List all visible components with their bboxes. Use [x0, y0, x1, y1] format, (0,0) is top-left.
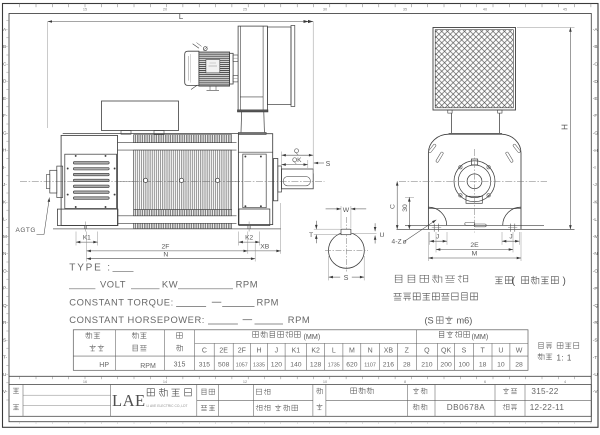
- svg-text:QK: QK: [292, 157, 302, 164]
- svg-text:15: 15: [83, 8, 87, 12]
- svg-text:K1: K1: [292, 347, 301, 354]
- svg-text:CONSTANT TORQUE:: CONSTANT TORQUE:: [69, 296, 173, 307]
- svg-text:-T: -T: [593, 355, 598, 360]
- svg-text:45: 45: [563, 8, 567, 12]
- svg-text:6: 6: [484, 380, 486, 384]
- svg-text:-I: -I: [593, 165, 596, 170]
- svg-text:1107: 1107: [364, 362, 376, 368]
- svg-text:-O: -O: [593, 269, 599, 274]
- svg-text:T: T: [309, 232, 313, 239]
- svg-text:LAE: LAE: [112, 391, 146, 410]
- svg-text:Q: Q: [424, 347, 430, 354]
- svg-text:2F: 2F: [238, 347, 246, 354]
- svg-text:-L: -L: [593, 217, 598, 222]
- svg-text:2E: 2E: [219, 347, 228, 354]
- svg-text:315-22: 315-22: [531, 387, 558, 396]
- svg-text:S: S: [326, 161, 331, 168]
- svg-text:1057: 1057: [236, 362, 248, 368]
- svg-text:W: W: [516, 347, 523, 354]
- svg-text:T: T: [480, 347, 485, 354]
- svg-text:QK: QK: [441, 347, 451, 354]
- svg-text:KW: KW: [162, 279, 178, 290]
- svg-text:H: H: [256, 347, 261, 354]
- svg-text:N: N: [368, 347, 373, 354]
- svg-text:A-: A-: [3, 27, 8, 32]
- svg-text:-P: -P: [593, 286, 598, 291]
- svg-text:CONSTANT HORSEPOWER:: CONSTANT HORSEPOWER:: [69, 314, 205, 325]
- svg-text:20: 20: [163, 8, 167, 12]
- svg-text:P-: P-: [3, 286, 8, 291]
- svg-text:12-22-11: 12-22-11: [530, 403, 565, 412]
- svg-text:1335: 1335: [253, 362, 265, 368]
- svg-text:J: J: [436, 234, 439, 241]
- svg-text:(MM): (MM): [472, 332, 489, 341]
- svg-text:F-: F-: [3, 113, 8, 118]
- svg-text:M: M: [472, 251, 478, 258]
- svg-text:-F: -F: [593, 113, 598, 118]
- svg-text:XB: XB: [260, 243, 270, 250]
- svg-text:G-: G-: [3, 130, 9, 135]
- svg-text:35: 35: [403, 8, 407, 12]
- svg-text:Q-: Q-: [3, 303, 9, 308]
- svg-text:30: 30: [323, 8, 327, 12]
- svg-text:S: S: [462, 347, 467, 354]
- svg-text:K2: K2: [245, 235, 253, 242]
- svg-text:RPM: RPM: [288, 314, 310, 325]
- svg-text:-M: -M: [593, 234, 599, 239]
- svg-text:U: U: [498, 347, 503, 354]
- svg-text:K1: K1: [83, 235, 91, 242]
- svg-text:S-: S-: [3, 337, 8, 342]
- svg-text:L: L: [179, 12, 184, 21]
- svg-text:210: 210: [421, 361, 433, 368]
- svg-text:N: N: [163, 251, 168, 258]
- svg-text:16: 16: [83, 380, 87, 384]
- svg-text:T-: T-: [3, 355, 8, 360]
- svg-text:Z: Z: [405, 347, 410, 354]
- svg-text:8: 8: [404, 380, 406, 384]
- svg-text:VOLT: VOLT: [100, 279, 126, 290]
- svg-text:200: 200: [440, 361, 452, 368]
- svg-text:-J: -J: [593, 182, 597, 187]
- svg-text:28: 28: [515, 361, 523, 368]
- svg-text:W: W: [343, 207, 350, 214]
- svg-text:U: U: [380, 232, 385, 239]
- svg-text:Q: Q: [294, 148, 299, 155]
- svg-text:-R: -R: [593, 320, 599, 325]
- svg-text:L-: L-: [3, 217, 8, 222]
- svg-text:J-: J-: [3, 182, 7, 187]
- svg-text:J: J: [509, 234, 512, 241]
- svg-text:2F: 2F: [162, 243, 170, 250]
- svg-text:1735: 1735: [328, 362, 340, 368]
- svg-text:-Q: -Q: [593, 303, 599, 308]
- svg-text:120: 120: [271, 361, 283, 368]
- svg-text:-G: -G: [593, 131, 599, 136]
- svg-text:4-Z: 4-Z: [392, 239, 402, 246]
- svg-text:-U: -U: [593, 372, 599, 377]
- svg-text:V-: V-: [3, 389, 8, 394]
- svg-text:L: L: [332, 347, 336, 354]
- svg-text:315: 315: [199, 361, 211, 368]
- svg-text:LI AVE ELECTRIC CO.,LDT: LI AVE ELECTRIC CO.,LDT: [147, 404, 188, 408]
- svg-text:14: 14: [163, 380, 167, 384]
- svg-text:M-: M-: [3, 234, 9, 239]
- svg-text:AGTG: AGTG: [16, 227, 37, 234]
- svg-text:40: 40: [483, 8, 487, 12]
- svg-text:18: 18: [479, 361, 487, 368]
- svg-text:K2: K2: [311, 347, 320, 354]
- svg-text:1: 1: 1: 1: [557, 353, 572, 362]
- svg-text:2E: 2E: [470, 242, 479, 249]
- svg-text:100: 100: [458, 361, 470, 368]
- svg-text:m6): m6): [457, 316, 473, 326]
- svg-text:B-: B-: [3, 44, 8, 49]
- svg-text:DB0678A: DB0678A: [447, 403, 486, 412]
- svg-text:315: 315: [174, 362, 186, 369]
- svg-text:E-: E-: [3, 96, 8, 101]
- svg-text:H: H: [561, 124, 570, 130]
- svg-text:K-: K-: [3, 199, 8, 204]
- svg-text:I-: I-: [3, 165, 6, 170]
- svg-text:-B: -B: [593, 44, 598, 49]
- svg-text:-H: -H: [593, 148, 598, 153]
- svg-text:(S: (S: [425, 316, 434, 326]
- svg-text:10: 10: [497, 361, 505, 368]
- svg-text:10: 10: [323, 380, 327, 384]
- svg-text:RPM: RPM: [257, 296, 279, 307]
- svg-text:-D: -D: [593, 79, 599, 84]
- svg-text:ø: ø: [403, 239, 407, 246]
- svg-text:4: 4: [564, 380, 566, 384]
- svg-text:RPM: RPM: [140, 363, 156, 370]
- svg-text:S: S: [344, 273, 349, 282]
- svg-text:D-: D-: [3, 79, 8, 84]
- svg-text:N-: N-: [3, 251, 8, 256]
- svg-text:128: 128: [310, 361, 322, 368]
- svg-text:C: C: [202, 347, 207, 354]
- svg-text:30: 30: [402, 204, 409, 212]
- svg-text:U-: U-: [3, 372, 8, 377]
- svg-text:216: 216: [383, 361, 395, 368]
- svg-text:28: 28: [403, 361, 411, 368]
- svg-text:J: J: [275, 347, 279, 354]
- svg-text:): ): [563, 276, 566, 287]
- svg-text:-S: -S: [593, 338, 598, 343]
- svg-text:-C: -C: [593, 62, 599, 67]
- svg-text:XB: XB: [384, 347, 394, 354]
- svg-text:508: 508: [218, 361, 230, 368]
- svg-text:C: C: [390, 204, 397, 209]
- svg-text:RPM: RPM: [236, 279, 258, 290]
- svg-text:140: 140: [290, 361, 302, 368]
- svg-text:HP: HP: [99, 362, 109, 369]
- svg-text:620: 620: [346, 361, 358, 368]
- svg-text:R-: R-: [3, 320, 8, 325]
- svg-text:C-: C-: [3, 61, 8, 66]
- svg-text:-N: -N: [593, 251, 598, 256]
- svg-text:12: 12: [243, 380, 247, 384]
- svg-text:-E: -E: [593, 96, 598, 101]
- svg-text:(MM): (MM): [304, 332, 321, 341]
- svg-text:M: M: [349, 347, 355, 354]
- svg-text:25: 25: [243, 8, 247, 12]
- svg-text:H-: H-: [3, 148, 8, 153]
- svg-text:TYPE :: TYPE :: [69, 262, 111, 273]
- svg-text:O-: O-: [3, 268, 9, 273]
